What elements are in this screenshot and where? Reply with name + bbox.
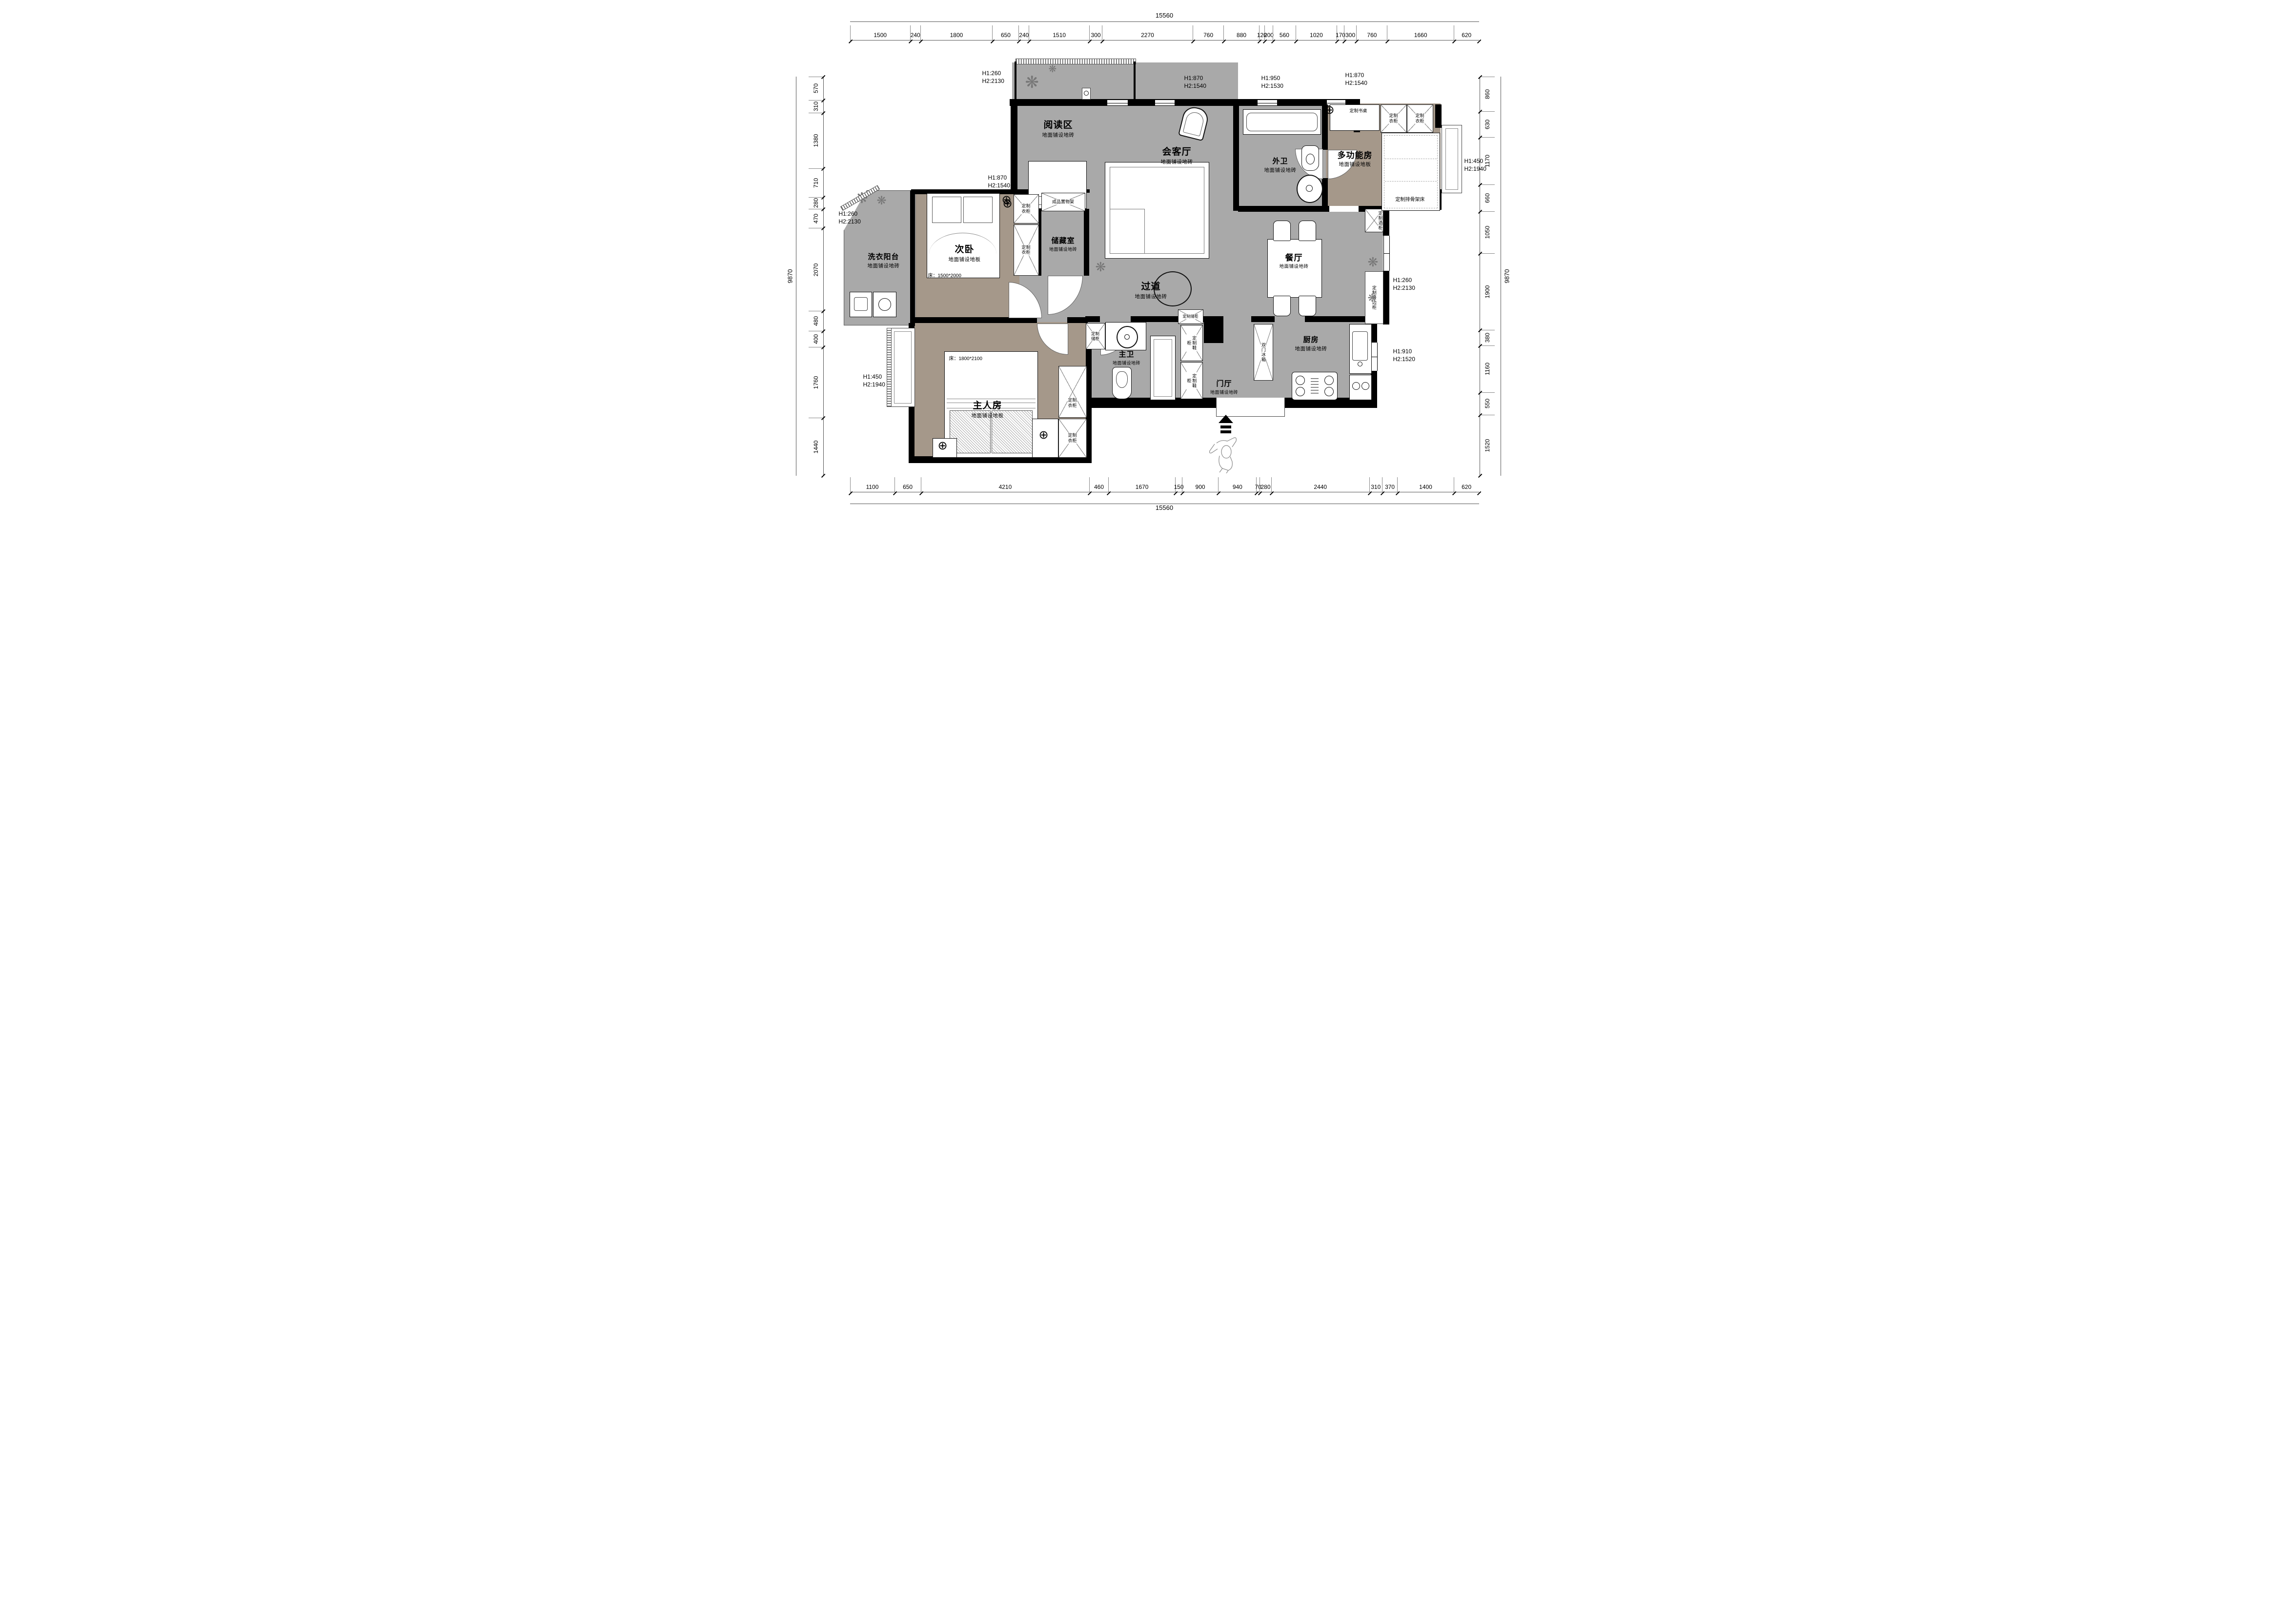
dimension-value: 550: [1484, 399, 1491, 408]
armchair-cushion: [1182, 110, 1205, 136]
annotation-line1: H1:450: [1464, 157, 1486, 165]
entrance-arrow-bar: [1220, 425, 1231, 428]
dimension-segment: 70: [1256, 477, 1260, 492]
pillow: [932, 197, 961, 223]
dimension-value: 200: [1264, 32, 1274, 39]
dimension-value: 300: [1091, 32, 1101, 39]
annotation-line2: H2:1940: [863, 381, 885, 388]
wall-storage-right: [1084, 209, 1089, 276]
dim-total-top: 15560: [850, 12, 1479, 22]
kitchen-counter-east: [1349, 324, 1372, 374]
window-seat-right: [1442, 125, 1462, 193]
multi-desk-label: 定制书桌: [1341, 108, 1376, 114]
wall-balcony-left: [1015, 61, 1016, 102]
dimension-segment: 1510: [1029, 25, 1089, 40]
dimension-value: 1660: [1414, 32, 1427, 39]
wall-bath-multi-lower: [1322, 178, 1328, 210]
dimension-segment: 170: [1337, 25, 1344, 40]
wardrobe-label: 定制衣柜: [1067, 398, 1077, 408]
dimension-segment: 1660: [1387, 25, 1453, 40]
blanket-line: [947, 403, 1036, 403]
wardrobe-label: 定制衣柜: [1067, 433, 1077, 444]
wall-dining-east-upper: [1383, 209, 1389, 236]
shoe-cabinet-1: 定制鞋柜: [1180, 325, 1203, 361]
dimension-segment: 630: [1480, 111, 1495, 137]
dining-table: [1267, 239, 1322, 298]
dimension-segment: 1670: [1108, 477, 1176, 492]
dimension-segment: 560: [1273, 25, 1296, 40]
dimension-value: 4210: [999, 484, 1012, 490]
toilet-outer: [1301, 145, 1319, 171]
height-annotation-6: H1:450H2:1940: [1464, 157, 1486, 173]
dim-total-right: 9870: [1501, 77, 1513, 476]
blanket-lines: [947, 399, 1036, 408]
wine-cabinet-label: 定制酒柜: [1378, 211, 1383, 230]
dimension-segment: 460: [1089, 477, 1108, 492]
window-top-2: [1155, 100, 1175, 106]
wardrobe-label: 定制衣柜: [1021, 203, 1031, 214]
wall-living-bath: [1233, 104, 1239, 211]
floor-plan: 15560 1500240180065024015103002270760880…: [766, 0, 1531, 533]
dimension-value: 240: [911, 32, 920, 39]
dimension-segment: 480: [809, 311, 823, 330]
blanket-curve: [929, 233, 996, 275]
dimension-value: 310: [1371, 484, 1381, 490]
annotation-line2: H2:2130: [1393, 284, 1415, 292]
dining-chair: [1299, 221, 1316, 241]
sofa: [1105, 162, 1209, 259]
dimension-segment: 1160: [1480, 345, 1495, 392]
wine-cabinet: 定制酒柜: [1365, 209, 1383, 232]
dimension-value: 630: [1484, 120, 1491, 129]
annotation-line1: H1:870: [1184, 74, 1206, 82]
dimension-segment: 300: [1089, 25, 1101, 40]
height-annotation-3: H1:870H2:1540: [1345, 71, 1367, 87]
dimension-value: 1520: [1484, 439, 1491, 452]
wall-master-north-b: [1067, 317, 1088, 323]
dimension-value: 400: [813, 334, 819, 344]
wall-dining-east-lower: [1383, 271, 1389, 324]
dimension-segment: 880: [1223, 25, 1259, 40]
annotation-line1: H1:450: [863, 373, 885, 381]
dim-total-bottom: 15560: [850, 504, 1479, 514]
dimension-segment: 1100: [850, 477, 894, 492]
window-top-3: [1258, 100, 1277, 106]
column-marker-multi: ⊕: [1325, 104, 1335, 116]
bathtub: [1243, 109, 1321, 135]
master-bed: [944, 351, 1038, 458]
dimension-value: 460: [1094, 484, 1104, 490]
height-annotation-5: H1:260H2:2130: [839, 210, 861, 225]
dimension-value: 2070: [813, 263, 819, 276]
washing-machine: [873, 292, 896, 317]
dimension-segment: 1440: [809, 418, 823, 476]
kitchen-cabinet-corner: [1349, 375, 1372, 400]
master-bed-note: 床：1800*2100: [949, 354, 982, 362]
dimension-segment: 2270: [1102, 25, 1193, 40]
storage-cabinet-bath: 定制储柜: [1086, 323, 1105, 349]
dimension-value: 1440: [813, 441, 819, 454]
dimension-value: 1020: [1310, 32, 1323, 39]
dimension-segment: 4210: [921, 477, 1089, 492]
dimension-value: 650: [903, 484, 913, 490]
dimension-value: 1510: [1053, 32, 1066, 39]
dimension-value: 480: [813, 316, 819, 326]
dimension-segment: 310: [809, 100, 823, 113]
slat-bed-label: 定制排骨架床: [1382, 197, 1439, 203]
shoe-cabinet-2: 定制鞋柜: [1180, 362, 1203, 399]
pillow-master: [992, 410, 1033, 453]
dimension-segment: 280: [1260, 477, 1271, 492]
dimension-value: 900: [1196, 484, 1205, 490]
dimension-segment: 380: [1480, 330, 1495, 345]
column-marker-second: ⊕: [1002, 194, 1012, 206]
dimension-segment: 2070: [809, 228, 823, 311]
dimension-segment: 280: [809, 197, 823, 209]
dimension-value: 1050: [1484, 226, 1491, 239]
rug: [1154, 271, 1192, 306]
dimension-value: 370: [1385, 484, 1395, 490]
annotation-line2: H2:2130: [839, 218, 861, 225]
sideboard-label: 定制餐边柜: [1371, 285, 1377, 310]
dimension-value: 620: [1462, 484, 1471, 490]
stove: [1292, 372, 1338, 400]
dimension-value: 2440: [1314, 484, 1327, 490]
fridge: 双门冰箱: [1254, 324, 1273, 381]
wardrobe-second-bottom: 定制衣柜: [1014, 224, 1039, 276]
dimension-value: 560: [1280, 32, 1289, 39]
shoe-cabinet-label: 定制鞋柜: [1186, 372, 1197, 390]
dimension-segment: 620: [1454, 25, 1479, 40]
annotation-line1: H1:870: [988, 174, 1010, 182]
dimension-segment: 240: [1018, 25, 1029, 40]
wardrobe-second-top: 定制衣柜: [1014, 194, 1039, 223]
wardrobe-multi-1: 定制衣柜: [1381, 104, 1407, 133]
dimension-segment: 860: [1480, 77, 1495, 111]
annotation-line2: H2:1940: [1464, 165, 1486, 173]
height-annotation-8: H1:910H2:1520: [1393, 347, 1415, 363]
dimension-value: 1670: [1136, 484, 1149, 490]
height-annotation-9: H1:450H2:1940: [863, 373, 885, 388]
wall-multi-right-upper: [1435, 104, 1442, 128]
wardrobe-label: 定制衣柜: [1388, 113, 1399, 124]
storage-cabinet-label: 定制储柜: [1183, 314, 1199, 319]
second-bed-note: 床：1500*2000: [928, 271, 961, 279]
column-marker-master-1: ⊕: [1039, 429, 1049, 441]
dimension-value: 380: [1484, 333, 1491, 343]
person-figure: [1205, 434, 1249, 473]
annotation-line2: H2:1540: [1345, 79, 1367, 87]
dimension-segment: 650: [992, 25, 1018, 40]
window-kitchen-east: [1371, 343, 1378, 371]
shoe-cabinet-label: 定制鞋柜: [1186, 334, 1197, 352]
dimension-segment: 370: [1382, 477, 1397, 492]
laundry-sink: [850, 292, 872, 317]
annotation-line2: H2:1540: [988, 182, 1010, 189]
column-marker-master-2: ⊕: [938, 440, 948, 452]
dimension-segment: 660: [1480, 184, 1495, 211]
annotation-line2: H2:1520: [1393, 355, 1415, 363]
dimension-value: 1760: [813, 376, 819, 389]
second-bed: [927, 193, 1000, 278]
height-annotation-2: H1:950H2:1530: [1261, 74, 1283, 90]
wall-laundry-divider: [910, 190, 915, 326]
annotation-line1: H1:950: [1261, 74, 1283, 82]
dimension-segment: 1800: [920, 25, 993, 40]
annotation-line2: H2:1540: [1184, 82, 1206, 90]
vanity-master: [1105, 322, 1146, 350]
dimension-value: 710: [813, 178, 819, 188]
dimension-value: 620: [1462, 32, 1471, 39]
dimension-value: 880: [1237, 32, 1246, 39]
window-top-1: [1107, 100, 1128, 106]
annotation-line2: H2:2130: [982, 77, 1004, 85]
dimension-segment: 1380: [809, 113, 823, 168]
height-annotation-4: H1:870H2:1540: [988, 174, 1010, 189]
annotation-line1: H1:260: [839, 210, 861, 218]
dim-total-left: 9870: [784, 77, 796, 476]
dim-row-top: 1500240180065024015103002270760880120200…: [850, 25, 1479, 41]
dimension-value: 570: [813, 83, 819, 93]
annotation-line1: H1:870: [1345, 71, 1367, 79]
balcony-column: [1082, 88, 1091, 100]
height-annotation-7: H1:260H2:2130: [1393, 276, 1415, 292]
sofa-chaise: [1110, 209, 1145, 254]
dimension-value: 860: [1484, 89, 1491, 99]
window-seat-left: [891, 328, 915, 407]
wall-living-left: [1011, 102, 1017, 193]
dining-chair: [1273, 296, 1291, 316]
dimension-value: 1800: [950, 32, 963, 39]
dimension-value: 940: [1233, 484, 1242, 490]
multi-desk-label-text: 定制书桌: [1349, 108, 1367, 113]
height-annotation-1: H1:870H2:1540: [1184, 74, 1206, 90]
dimension-segment: 1050: [1480, 211, 1495, 254]
slat-bed-label-text: 定制排骨架床: [1396, 197, 1425, 203]
dimension-segment: 1520: [1480, 415, 1495, 476]
dimension-value: 470: [813, 214, 819, 223]
dimension-segment: 940: [1218, 477, 1256, 492]
dimension-segment: 570: [809, 77, 823, 100]
window-dining-east: [1383, 236, 1390, 271]
dining-chair: [1299, 296, 1316, 316]
dimension-value: 650: [1001, 32, 1011, 39]
shower-column: [1150, 336, 1176, 400]
dimension-segment: 710: [809, 168, 823, 197]
slat-line: [1385, 159, 1437, 159]
dimension-value: 1380: [813, 134, 819, 147]
dim-row-bottom: 1100650421046016701509009407028024403103…: [850, 477, 1479, 492]
dim-row-right: 86063011706601050190038011605501520: [1480, 77, 1495, 476]
dimension-segment: 760: [1193, 25, 1223, 40]
dimension-value: 1500: [874, 32, 887, 39]
window-balcony-top: [1016, 59, 1136, 64]
dimension-value: 310: [813, 101, 819, 111]
wall-hall-kitchen-stub: [1204, 316, 1223, 343]
shelf-unit: 成品置物架: [1041, 193, 1085, 211]
shelf-label: 成品置物架: [1052, 200, 1074, 205]
dimension-segment: 150: [1175, 477, 1181, 492]
fridge-label: 双门冰箱: [1260, 343, 1266, 362]
sideboard: 定制餐边柜: [1365, 271, 1383, 324]
dimension-segment: 470: [809, 209, 823, 228]
dimension-segment: 1400: [1397, 477, 1454, 492]
dimension-value: 760: [1203, 32, 1213, 39]
annotation-line1: H1:260: [1393, 276, 1415, 284]
annotation-line2: H2:1530: [1261, 82, 1283, 90]
storage-cabinet-hall: 定制储柜: [1178, 309, 1203, 324]
dimension-segment: 760: [1356, 25, 1387, 40]
entrance-arrow-icon: [1219, 415, 1233, 423]
dimension-segment: 650: [894, 477, 921, 492]
wardrobe-master-1: 定制衣柜: [1058, 366, 1087, 418]
wardrobe-label: 定制衣柜: [1021, 245, 1031, 256]
dimension-value: 1100: [866, 484, 879, 490]
window-master-west: [887, 328, 892, 407]
dimension-segment: 1760: [809, 347, 823, 418]
dimension-segment: 550: [1480, 392, 1495, 415]
dimension-value: 280: [813, 198, 819, 208]
dimension-value: 2270: [1141, 32, 1154, 39]
dimension-value: 240: [1019, 32, 1029, 39]
dimension-segment: 1500: [850, 25, 910, 40]
toilet-master: [1112, 367, 1132, 399]
dimension-segment: 1900: [1480, 253, 1495, 329]
dimension-value: 1900: [1484, 285, 1491, 299]
dining-chair: [1273, 221, 1291, 241]
dimension-segment: 900: [1182, 477, 1219, 492]
slat-line: [1385, 181, 1437, 182]
entrance-arrow-bar: [1220, 430, 1231, 433]
dimension-value: 1400: [1419, 484, 1432, 490]
storage-cabinet-label: 定制储柜: [1091, 331, 1100, 341]
dimension-segment: 310: [1369, 477, 1382, 492]
dimension-value: 1160: [1484, 363, 1491, 375]
dimension-value: 280: [1260, 484, 1270, 490]
annotation-line1: H1:260: [982, 69, 1004, 77]
pillow: [963, 197, 993, 223]
dimension-segment: 2440: [1271, 477, 1369, 492]
dimension-segment: 240: [910, 25, 920, 40]
dimension-value: 760: [1367, 32, 1377, 39]
wardrobe-label: 定制衣柜: [1415, 113, 1425, 124]
annotation-line1: H1:910: [1393, 347, 1415, 355]
wardrobe-master-2: 定制衣柜: [1058, 419, 1087, 458]
wardrobe-multi-2: 定制衣柜: [1407, 104, 1433, 133]
washbasin-outer: [1297, 175, 1323, 203]
dimension-value: 300: [1345, 32, 1355, 39]
dimension-segment: 620: [1454, 477, 1479, 492]
wall-kitchen-north-a: [1251, 316, 1275, 322]
height-annotation-0: H1:260H2:2130: [982, 69, 1004, 85]
door-gap-multi: [1329, 206, 1359, 212]
dimension-segment: 1020: [1296, 25, 1337, 40]
dimension-segment: 200: [1264, 25, 1273, 40]
dimension-segment: 400: [809, 331, 823, 347]
dimension-value: 660: [1484, 193, 1491, 203]
wall-balcony-right: [1134, 61, 1136, 102]
dim-row-left: 5703101380710280470207048040017601440: [809, 77, 824, 476]
dimension-segment: 300: [1344, 25, 1356, 40]
entrance-step: [1216, 398, 1285, 417]
